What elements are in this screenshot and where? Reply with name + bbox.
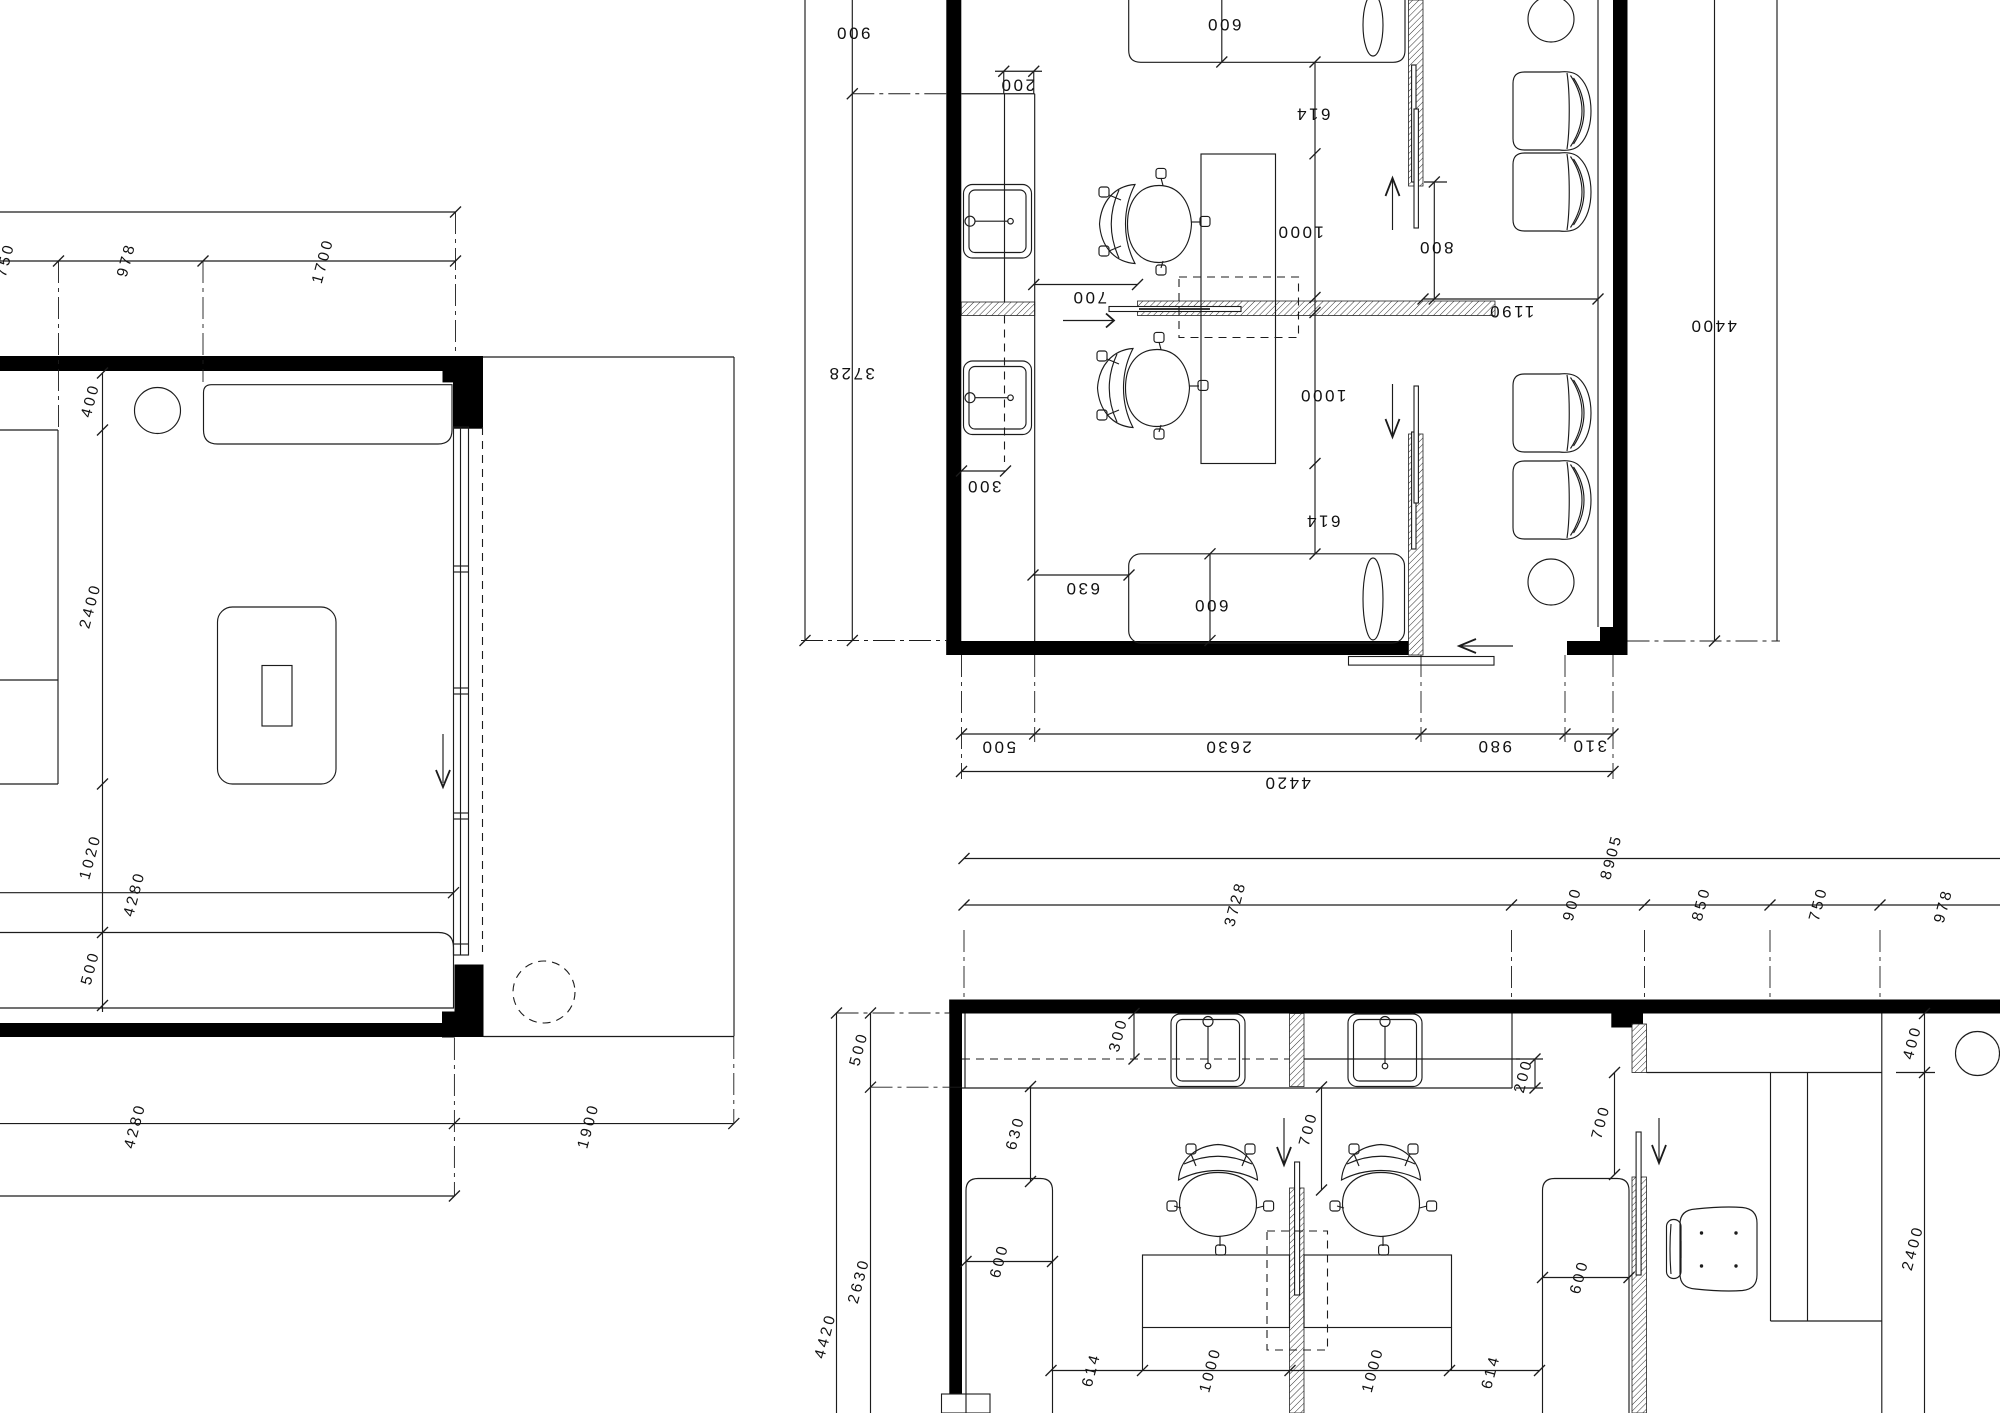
svg-text:600: 600 bbox=[1206, 15, 1242, 34]
svg-text:1000: 1000 bbox=[1276, 223, 1324, 242]
svg-text:2630: 2630 bbox=[1204, 738, 1252, 757]
svg-text:980: 980 bbox=[1476, 737, 1512, 756]
svg-text:4400: 4400 bbox=[1689, 317, 1737, 336]
svg-text:900: 900 bbox=[835, 24, 871, 43]
svg-text:600: 600 bbox=[1193, 596, 1229, 615]
svg-text:300: 300 bbox=[966, 477, 1002, 496]
svg-text:310: 310 bbox=[1571, 737, 1607, 756]
svg-text:614: 614 bbox=[1295, 105, 1331, 124]
svg-text:800: 800 bbox=[1418, 238, 1454, 257]
svg-text:200: 200 bbox=[999, 76, 1035, 95]
svg-text:3728: 3728 bbox=[827, 364, 875, 383]
svg-text:700: 700 bbox=[1071, 288, 1107, 307]
svg-text:1190: 1190 bbox=[1488, 302, 1535, 321]
svg-text:614: 614 bbox=[1305, 512, 1341, 531]
svg-text:1000: 1000 bbox=[1299, 386, 1347, 405]
svg-text:500: 500 bbox=[980, 738, 1016, 757]
svg-text:630: 630 bbox=[1064, 579, 1100, 598]
svg-text:4420: 4420 bbox=[1263, 774, 1311, 793]
